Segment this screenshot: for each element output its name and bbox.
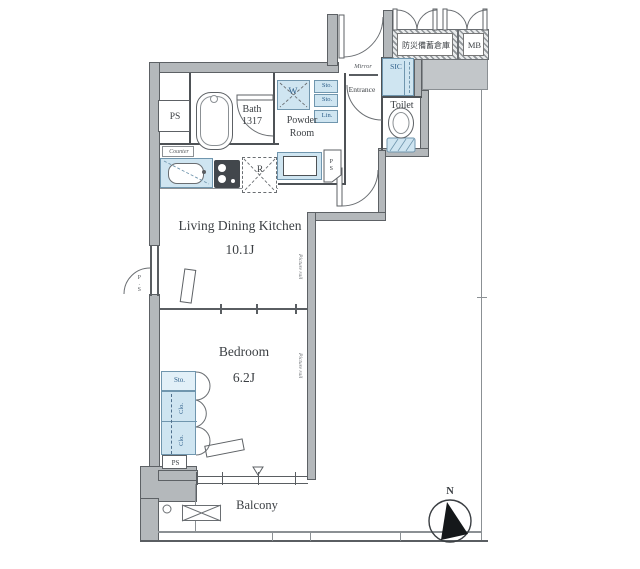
partition-powder-bottom xyxy=(278,183,346,185)
wall-left-lower xyxy=(149,294,160,472)
balcony-outer-line xyxy=(140,540,488,542)
powder-room-name-2: Room xyxy=(272,129,332,140)
mb-box: MB xyxy=(463,33,484,56)
stove xyxy=(214,160,240,188)
fridge-label: R xyxy=(252,166,268,176)
picture-rail-label-bedroom: Picture rail xyxy=(296,345,302,387)
wall-toilet-right xyxy=(420,90,429,156)
wall-common-area-block xyxy=(422,58,488,90)
faucet-icon xyxy=(202,170,206,174)
bathtub-inner xyxy=(200,96,229,146)
edge-tick xyxy=(477,297,487,298)
floor-plan: 防災備蓄倉庫 MB PS W Sto. Sto. Lin. SIC Mirror… xyxy=(0,0,640,569)
bedroom-name: Bedroom xyxy=(198,345,290,359)
partition-toilet-top xyxy=(382,96,422,98)
closet: Clo. Clo. xyxy=(161,391,196,455)
partition-ldk-bedroom xyxy=(160,308,308,310)
closet-clo2-label: Clo. xyxy=(178,426,185,454)
wall-right-main xyxy=(307,212,316,480)
mb-label: MB xyxy=(464,34,485,57)
ldk-size: 10.1J xyxy=(205,243,275,257)
ps-pentagon-label: PS xyxy=(328,153,334,179)
window-tick xyxy=(258,472,259,485)
door-leaf xyxy=(204,438,245,457)
wall-sic-right xyxy=(414,58,422,98)
kitchen-sink xyxy=(168,163,204,184)
pipe-space-box-bottom: PS xyxy=(162,455,187,469)
slider-tick xyxy=(256,304,258,314)
storage-shelf-box: Sto. xyxy=(314,94,338,107)
south-window-line xyxy=(196,476,308,477)
storage-label: 防災備蓄倉庫 xyxy=(398,34,454,57)
powder-room-name-1: Powder xyxy=(272,116,332,127)
rail-tick xyxy=(272,531,273,541)
bath-name: Bath xyxy=(234,105,270,116)
hanger-pole-line xyxy=(171,394,172,454)
balcony-name: Balcony xyxy=(225,499,289,512)
ps-bottom-label: PS xyxy=(163,456,188,470)
bath-drain-icon xyxy=(210,95,218,103)
toilet-name: Toilet xyxy=(383,101,421,112)
burner-icon xyxy=(218,164,226,172)
pipe-space-box: PS xyxy=(158,100,190,132)
ps-top-label: PS xyxy=(159,101,191,133)
wall-mid-horizontal xyxy=(307,212,386,221)
slider-tick xyxy=(220,304,222,314)
window-tick xyxy=(295,472,296,485)
window-tick xyxy=(222,472,223,485)
left-window-line xyxy=(150,246,152,296)
left-shaft-label: P.S xyxy=(136,271,142,297)
storage-shelf-box: Sto. xyxy=(314,80,338,93)
compass xyxy=(429,500,471,542)
compass-n-label: N xyxy=(436,486,464,497)
sic-shelf-line xyxy=(404,61,405,95)
balcony-equipment-box xyxy=(182,505,221,521)
sto-a-label: Sto. xyxy=(315,82,339,89)
storage-box: 防災備蓄倉庫 xyxy=(397,33,453,56)
picture-rail-label-ldk: Picture rail xyxy=(296,246,302,288)
bedroom-size: 6.2J xyxy=(202,371,286,385)
mirror-strip xyxy=(349,74,378,76)
closet-sto-label: Sto. xyxy=(162,376,197,384)
wall-right-mid-upper xyxy=(378,150,386,221)
sic-shelf-dashes xyxy=(409,62,410,93)
washer-label: W xyxy=(286,87,300,97)
slider-tick xyxy=(295,304,297,314)
toilet-fixture xyxy=(387,108,415,152)
wall-bottom-left-strip xyxy=(140,498,159,542)
closet-clo1-label: Clo. xyxy=(178,396,185,420)
door-leaf xyxy=(180,268,197,303)
shoe-in-closet: SIC xyxy=(382,58,414,96)
wall-left-upper xyxy=(149,62,160,246)
counter-label: Counter xyxy=(163,147,195,158)
window-jamb xyxy=(196,472,198,485)
sto-b-label: Sto. xyxy=(315,96,339,103)
closet-storage-box: Sto. xyxy=(161,371,196,391)
wall-top xyxy=(149,62,339,73)
north-arrow-icon xyxy=(441,502,468,540)
counter-label-box: Counter xyxy=(162,146,194,157)
building-edge-line xyxy=(481,90,482,540)
burner-small-icon xyxy=(231,179,235,183)
wall-south-stub xyxy=(158,470,198,481)
rail-tick xyxy=(310,531,311,541)
burner-icon xyxy=(218,175,226,183)
wash-basin xyxy=(283,156,317,176)
closet-divider xyxy=(162,421,197,422)
left-window-line xyxy=(157,246,159,296)
wall-entrance-step xyxy=(327,14,338,66)
south-window-line xyxy=(196,483,308,484)
bath-size: 1317 xyxy=(234,117,270,128)
ldk-name: Living Dining Kitchen xyxy=(165,219,315,233)
entrance-name: Entrance xyxy=(342,86,382,94)
balcony-rail-line xyxy=(158,531,482,533)
mirror-label: Mirror xyxy=(346,64,380,71)
rail-tick xyxy=(400,531,401,541)
